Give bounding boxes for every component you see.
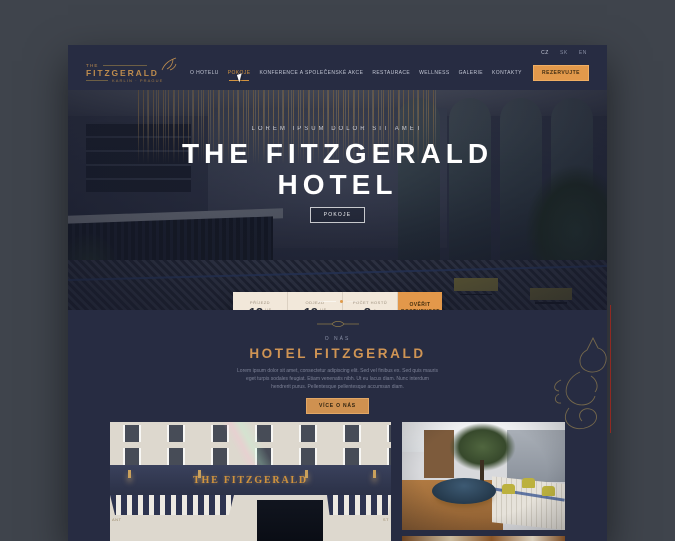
- lobby-vignette: [402, 422, 565, 530]
- checkout-day: 19: [304, 306, 318, 311]
- logo[interactable]: THE FITZGERALD KARLIN · PRAGUE: [86, 63, 174, 83]
- divider-flourish-icon: [317, 320, 359, 328]
- facade-awning-right: [327, 495, 391, 515]
- guests-value: 2: [364, 306, 371, 311]
- hero-tagline: LOREM IPSUM DOLOR SIT AMET: [68, 126, 607, 132]
- facade-sign-band: THE FITZGERALD: [110, 465, 391, 495]
- facade-door: [257, 500, 323, 541]
- hero-carousel-indicator: [68, 300, 607, 303]
- hero-content: LOREM IPSUM DOLOR SIT AMET THE FITZGERAL…: [68, 90, 607, 223]
- nav-item-konference[interactable]: KONFERENCE A SPOLEČENSKÉ AKCE: [259, 70, 363, 76]
- checkin-day: 12: [249, 306, 263, 311]
- hero-title-line2: HOTEL: [68, 169, 607, 200]
- checkin-month: LIS: [265, 308, 271, 310]
- about-title: HOTEL FITZGERALD: [68, 346, 607, 361]
- stepper-up-icon: ⌃: [373, 309, 376, 311]
- header-row: THE FITZGERALD KARLIN · PRAGUE O HOTELU …: [68, 56, 607, 90]
- lobby-photo[interactable]: [402, 422, 565, 530]
- facade-sign-text: THE FITZGERALD: [193, 475, 308, 486]
- carousel-progress-line: [318, 301, 336, 302]
- carousel-rest-line: [347, 301, 358, 302]
- hero-title-line1: THE FITZGERALD: [68, 138, 607, 169]
- facade-photo[interactable]: THE FITZGERALD ANT ST: [110, 422, 391, 541]
- more-about-button[interactable]: VÍCE O NÁS: [306, 398, 369, 414]
- bird-flourish-icon: [160, 56, 178, 72]
- gallery-section: THE FITZGERALD ANT ST: [68, 422, 607, 541]
- facade-partial-sign-left: ANT: [112, 517, 122, 522]
- nav-item-restaurace[interactable]: RESTAURACE: [372, 70, 410, 76]
- guide-line-red-right: [610, 305, 611, 433]
- guests-stepper[interactable]: ⌃⌄: [373, 309, 376, 311]
- nav-item-o-hotelu[interactable]: O HOTELU: [190, 70, 219, 76]
- hero-section: LOREM IPSUM DOLOR SIT AMET THE FITZGERAL…: [68, 90, 607, 310]
- logo-subtitle: KARLIN · PRAGUE: [112, 78, 163, 83]
- presentation-background: CZ SK EN THE FITZGERALD KARLIN · PRAGUE …: [0, 0, 675, 541]
- website-mockup: CZ SK EN THE FITZGERALD KARLIN · PRAGUE …: [68, 45, 607, 541]
- hero-title: THE FITZGERALD HOTEL: [68, 138, 607, 200]
- next-photo-partial: [402, 536, 565, 541]
- about-section: O NÁS HOTEL FITZGERALD Lorem ipsum dolor…: [68, 310, 607, 422]
- facade-partial-sign-right: ST: [383, 517, 389, 522]
- about-paragraph: Lorem ipsum dolor sit amet, consectetur …: [237, 367, 439, 391]
- facade-windows: [110, 422, 391, 465]
- reserve-button[interactable]: REZERVUJTE: [533, 65, 589, 81]
- hero-pokoje-button[interactable]: POKOJE: [310, 207, 365, 223]
- nav-item-wellness[interactable]: WELLNESS: [419, 70, 449, 76]
- facade-lamp-icon: [373, 470, 376, 478]
- nav-item-galerie[interactable]: GALERIE: [459, 70, 483, 76]
- facade-lamp-icon: [198, 470, 201, 478]
- facade-lamp-icon: [128, 470, 131, 478]
- site-header: CZ SK EN THE FITZGERALD KARLIN · PRAGUE …: [68, 45, 607, 90]
- facade-lamp-icon: [305, 470, 308, 478]
- checkout-month: LIS: [320, 308, 326, 310]
- carousel-active-dot[interactable]: [340, 300, 343, 303]
- about-kicker: O NÁS: [68, 336, 607, 342]
- nav-item-kontakty[interactable]: KONTAKTY: [492, 70, 522, 76]
- facade-awning-left: [110, 495, 234, 515]
